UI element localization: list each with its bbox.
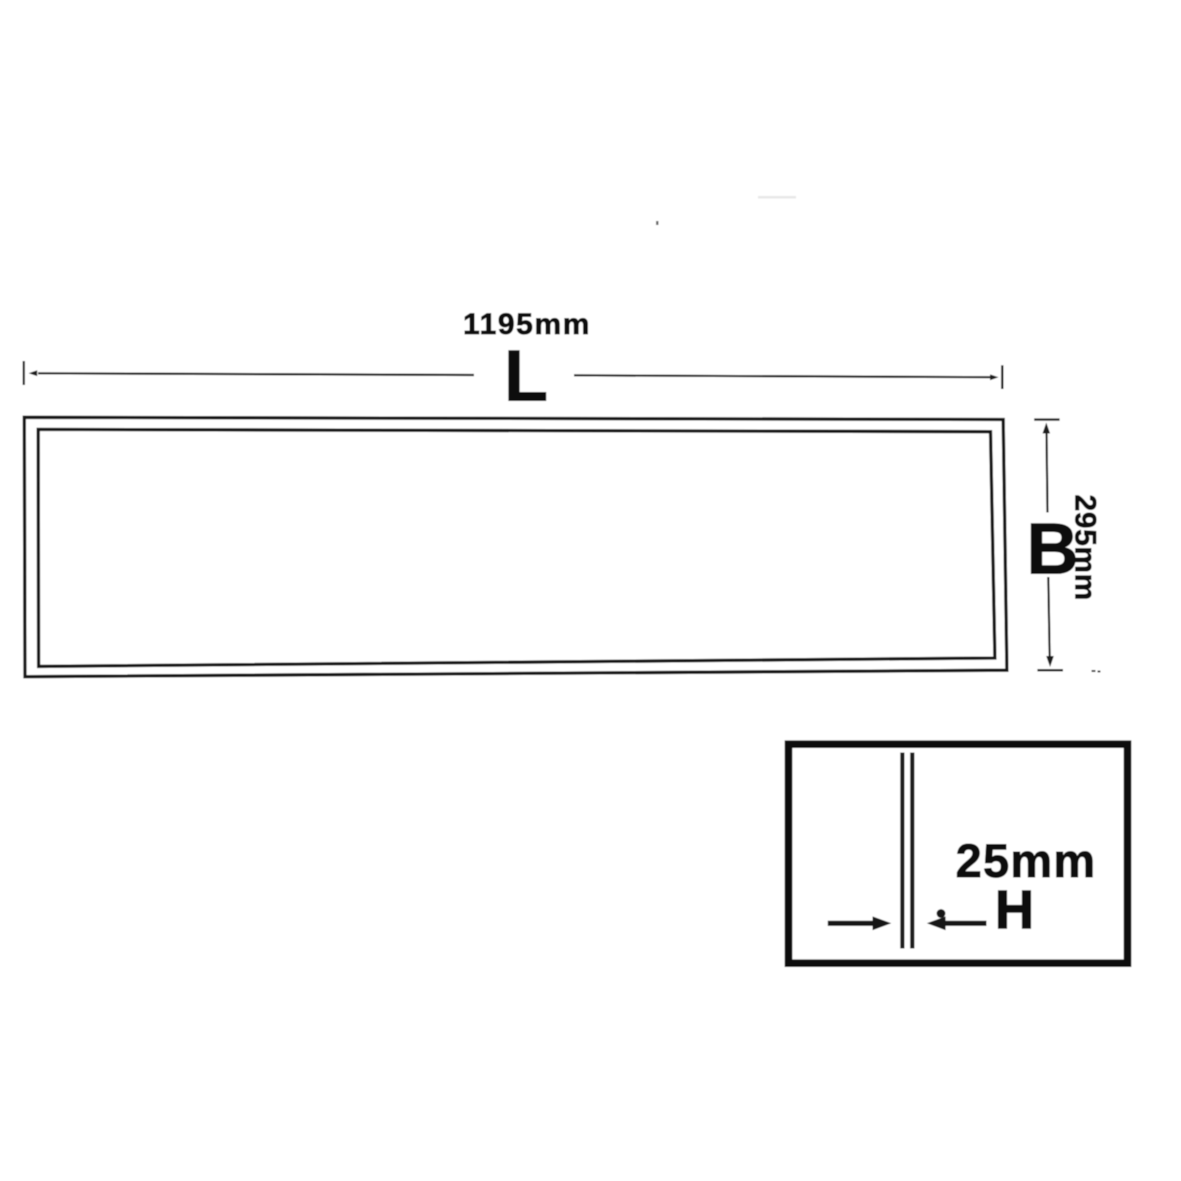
svg-text:295mm: 295mm [1069,495,1102,601]
svg-text:H: H [995,880,1034,940]
svg-text:L: L [504,337,548,417]
